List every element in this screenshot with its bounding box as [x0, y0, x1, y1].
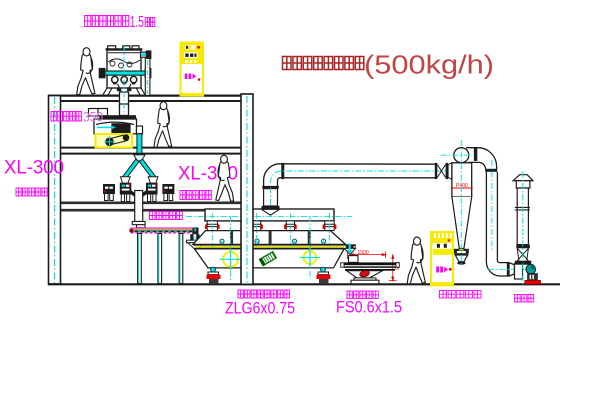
- svg-text:1.5: 1.5: [130, 14, 144, 31]
- svg-text:FS0.6x1.5: FS0.6x1.5: [336, 298, 402, 317]
- svg-text:(500kg/h): (500kg/h): [364, 52, 494, 80]
- svg-text:350: 350: [83, 110, 103, 125]
- svg-text:1500: 1500: [358, 250, 369, 256]
- svg-text:ZLG6x0.75: ZLG6x0.75: [225, 299, 295, 318]
- svg-text:XL-300: XL-300: [4, 157, 64, 179]
